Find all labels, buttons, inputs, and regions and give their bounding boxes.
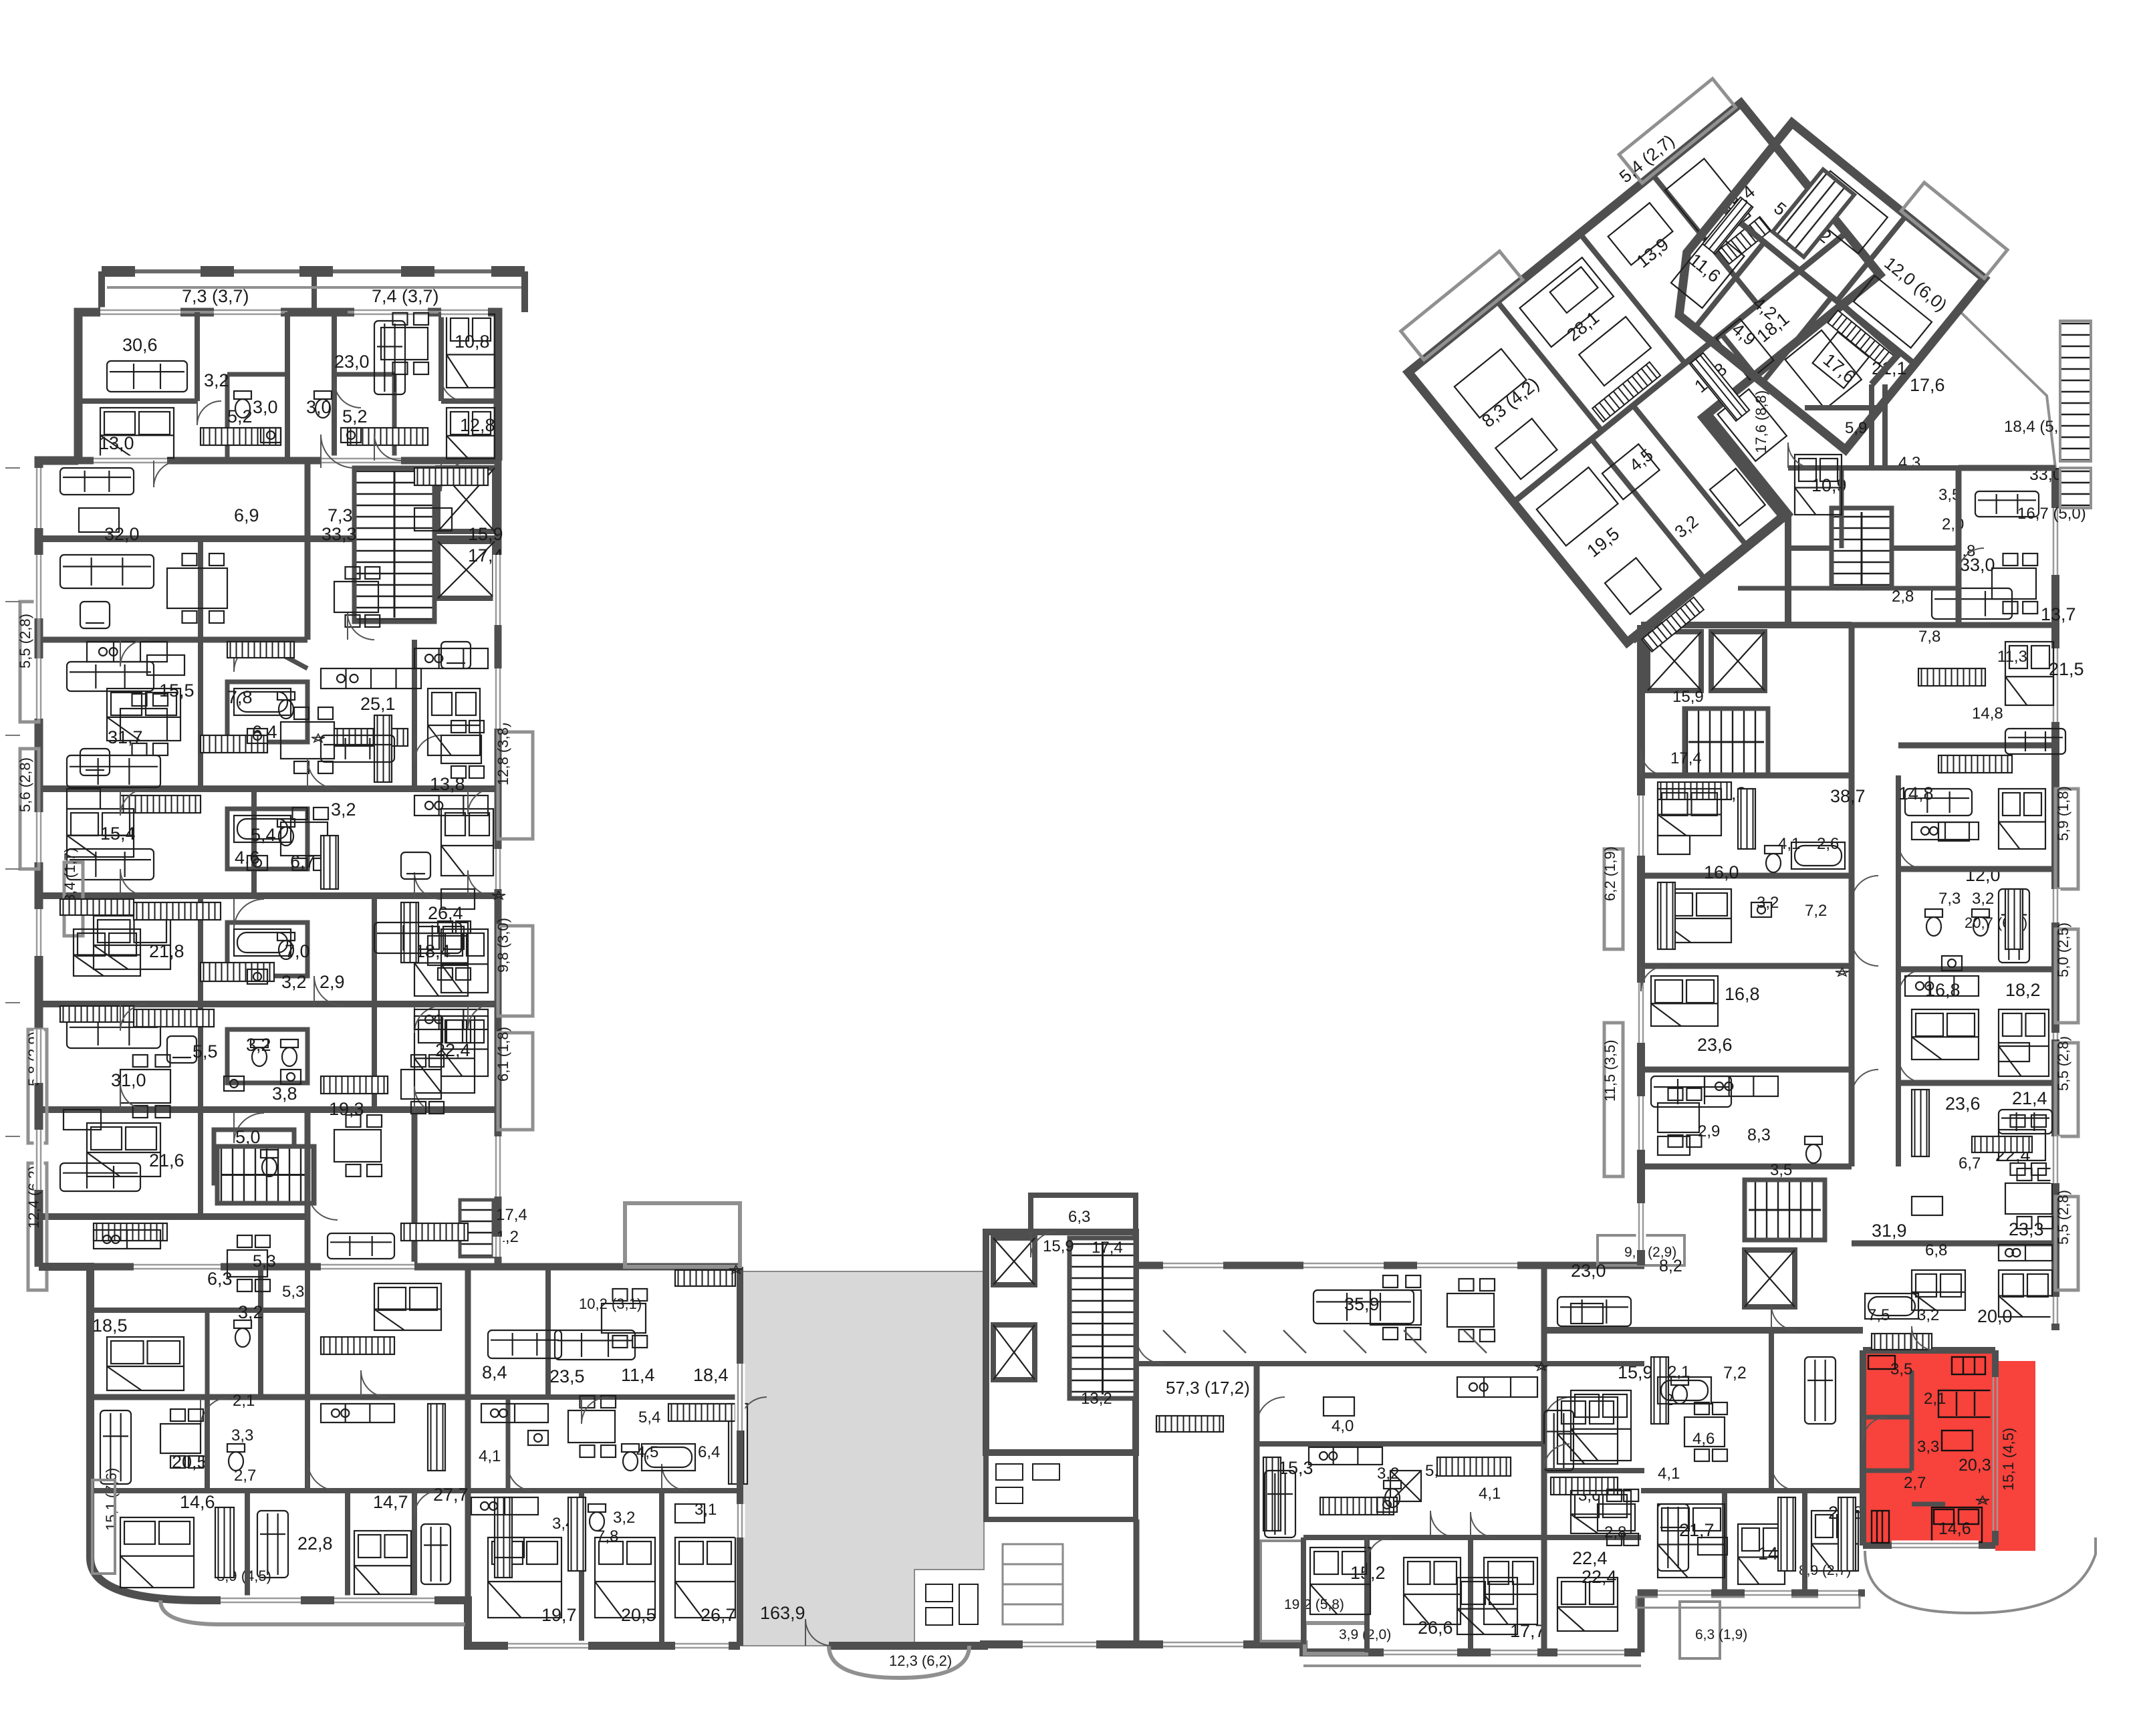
svg-text:5,5 (2,8): 5,5 (2,8): [17, 614, 33, 668]
svg-text:15,9: 15,9: [468, 524, 503, 544]
svg-text:17,4: 17,4: [1092, 1239, 1123, 1257]
svg-text:22,4: 22,4: [1572, 1548, 1608, 1568]
svg-text:38,7: 38,7: [1830, 786, 1866, 806]
svg-text:6,9: 6,9: [234, 505, 259, 525]
svg-text:3,0: 3,0: [253, 397, 278, 417]
svg-text:13,0: 13,0: [99, 433, 134, 453]
svg-text:163,9: 163,9: [760, 1603, 805, 1623]
svg-text:7,8: 7,8: [227, 687, 253, 707]
svg-text:11,4: 11,4: [621, 1365, 655, 1385]
svg-text:7,3: 7,3: [328, 505, 353, 525]
svg-text:15,1 (7,6): 15,1 (7,6): [103, 1468, 120, 1531]
svg-text:5,9: 5,9: [1845, 419, 1867, 437]
svg-text:26,4: 26,4: [428, 903, 463, 923]
svg-text:15,9: 15,9: [1043, 1237, 1074, 1255]
svg-text:22,4: 22,4: [1582, 1567, 1617, 1587]
svg-text:18,2: 18,2: [2005, 980, 2041, 1000]
svg-text:33,3: 33,3: [322, 524, 357, 544]
svg-text:4,1: 4,1: [1479, 1485, 1501, 1503]
svg-text:3,3: 3,3: [231, 1427, 253, 1445]
svg-text:31,9: 31,9: [1872, 1221, 1907, 1241]
svg-text:3,2: 3,2: [238, 1302, 263, 1322]
svg-text:23,6: 23,6: [1697, 1035, 1733, 1055]
svg-text:8,4: 8,4: [482, 1362, 507, 1382]
svg-text:23,6: 23,6: [1945, 1094, 1981, 1114]
svg-text:23,0: 23,0: [1571, 1261, 1606, 1281]
svg-text:17,6 (8,8): 17,6 (8,8): [1753, 390, 1769, 453]
svg-text:23,0: 23,0: [334, 352, 370, 372]
svg-text:3,8: 3,8: [272, 1084, 297, 1104]
svg-text:17,4: 17,4: [1670, 749, 1702, 767]
svg-text:6,3 (1,9): 6,3 (1,9): [1695, 1627, 1747, 1642]
svg-text:21,6: 21,6: [149, 1150, 184, 1170]
svg-text:25,1: 25,1: [360, 694, 396, 714]
svg-text:30,6: 30,6: [122, 335, 158, 355]
svg-text:35,9: 35,9: [1344, 1294, 1380, 1314]
svg-text:3,2: 3,2: [204, 370, 229, 390]
svg-text:3,2: 3,2: [1917, 1306, 1939, 1324]
svg-text:7,8: 7,8: [1918, 628, 1940, 646]
svg-text:16,0: 16,0: [1704, 862, 1739, 882]
svg-text:5,5 (2,8): 5,5 (2,8): [2055, 1190, 2071, 1245]
svg-text:18,5: 18,5: [92, 1316, 128, 1336]
svg-text:13,2: 13,2: [1081, 1390, 1112, 1408]
svg-text:17,6: 17,6: [1910, 375, 1945, 395]
svg-text:32,0: 32,0: [104, 524, 140, 544]
svg-text:2,7: 2,7: [234, 1467, 256, 1485]
svg-text:19,2 (5,8): 19,2 (5,8): [1284, 1597, 1344, 1612]
svg-text:5,4: 5,4: [638, 1408, 660, 1427]
svg-text:7,3 (3,7): 7,3 (3,7): [182, 286, 249, 306]
svg-text:20,5: 20,5: [172, 1452, 207, 1472]
svg-text:5,9 (1,8): 5,9 (1,8): [2055, 786, 2071, 841]
svg-text:7,4 (3,7): 7,4 (3,7): [372, 286, 439, 306]
svg-text:27,7: 27,7: [433, 1485, 469, 1505]
svg-text:26,6: 26,6: [1418, 1618, 1453, 1638]
svg-text:14,6: 14,6: [1938, 1519, 1971, 1538]
svg-text:14,7: 14,7: [373, 1492, 408, 1512]
svg-text:4,1: 4,1: [479, 1447, 501, 1465]
svg-text:14,8: 14,8: [1972, 705, 2003, 723]
svg-text:6,7: 6,7: [290, 852, 316, 872]
svg-text:3,4 (1,7): 3,4 (1,7): [61, 848, 78, 902]
svg-text:22,8: 22,8: [297, 1533, 333, 1554]
svg-text:9,8 (3,0): 9,8 (3,0): [495, 918, 511, 973]
svg-text:7,2: 7,2: [1805, 902, 1827, 920]
svg-text:8,3: 8,3: [1747, 1126, 1771, 1144]
svg-text:13,8: 13,8: [430, 774, 465, 794]
svg-text:4,1: 4,1: [1658, 1465, 1680, 1483]
svg-text:2,6: 2,6: [1817, 835, 1839, 853]
svg-text:19,7: 19,7: [541, 1605, 577, 1625]
svg-text:12,8: 12,8: [460, 415, 495, 435]
svg-text:5,6 (2,8): 5,6 (2,8): [17, 757, 33, 812]
svg-text:3,5: 3,5: [1770, 1161, 1792, 1179]
svg-text:5,2: 5,2: [342, 406, 368, 426]
svg-text:6,4: 6,4: [698, 1443, 720, 1461]
svg-text:16,8: 16,8: [1725, 984, 1760, 1004]
svg-text:12,3 (6,2): 12,3 (6,2): [889, 1652, 952, 1669]
svg-text:18,4: 18,4: [693, 1365, 729, 1385]
svg-text:3,3: 3,3: [1917, 1438, 1939, 1456]
svg-text:6,8: 6,8: [1925, 1241, 1947, 1259]
svg-text:57,3 (17,2): 57,3 (17,2): [1166, 1378, 1250, 1398]
svg-text:21,8: 21,8: [149, 941, 184, 961]
svg-text:3,2: 3,2: [281, 972, 307, 992]
svg-text:7,2: 7,2: [1723, 1364, 1747, 1382]
svg-text:5,5 (2,8): 5,5 (2,8): [2055, 1036, 2071, 1091]
svg-text:4,0: 4,0: [1332, 1417, 1354, 1435]
svg-text:21,4: 21,4: [2012, 1088, 2047, 1108]
svg-text:6,2 (1,9): 6,2 (1,9): [1602, 846, 1618, 901]
svg-text:14,8: 14,8: [1898, 783, 1934, 803]
svg-text:6,7: 6,7: [1959, 1154, 1981, 1172]
svg-text:15,9: 15,9: [1672, 688, 1704, 706]
svg-text:17,4: 17,4: [496, 1206, 527, 1224]
svg-text:23,5: 23,5: [549, 1366, 585, 1386]
svg-text:6,3: 6,3: [1068, 1208, 1090, 1226]
svg-text:2,9: 2,9: [320, 972, 345, 992]
svg-text:20,3: 20,3: [1959, 1456, 1991, 1475]
svg-text:3,2: 3,2: [1972, 890, 1994, 908]
svg-text:4,6: 4,6: [1692, 1430, 1715, 1448]
svg-text:3,2: 3,2: [613, 1509, 635, 1527]
svg-text:5,3: 5,3: [282, 1283, 304, 1301]
svg-text:2,1: 2,1: [233, 1392, 255, 1410]
svg-text:11,5 (3,5): 11,5 (3,5): [1602, 1039, 1618, 1102]
svg-text:5,3: 5,3: [253, 1252, 276, 1271]
svg-text:11,3: 11,3: [1997, 648, 2027, 666]
svg-text:26,7: 26,7: [701, 1605, 736, 1625]
svg-text:8,2: 8,2: [1659, 1257, 1682, 1275]
svg-text:3,2: 3,2: [331, 799, 356, 820]
svg-text:15,1 (4,5): 15,1 (4,5): [2000, 1428, 2017, 1491]
svg-text:20,5: 20,5: [621, 1605, 656, 1625]
svg-text:6,1 (1,8): 6,1 (1,8): [495, 1027, 511, 1082]
svg-text:13,7: 13,7: [2041, 604, 2076, 624]
svg-text:7,3: 7,3: [1938, 890, 1961, 908]
svg-text:14,6: 14,6: [180, 1492, 215, 1512]
svg-text:2,1: 2,1: [1924, 1390, 1946, 1408]
svg-text:2,7: 2,7: [1904, 1474, 1926, 1492]
svg-text:31,0: 31,0: [111, 1070, 146, 1090]
svg-text:12,8 (3,8): 12,8 (3,8): [495, 723, 511, 785]
svg-text:5,0 (2,5): 5,0 (2,5): [2055, 922, 2071, 977]
